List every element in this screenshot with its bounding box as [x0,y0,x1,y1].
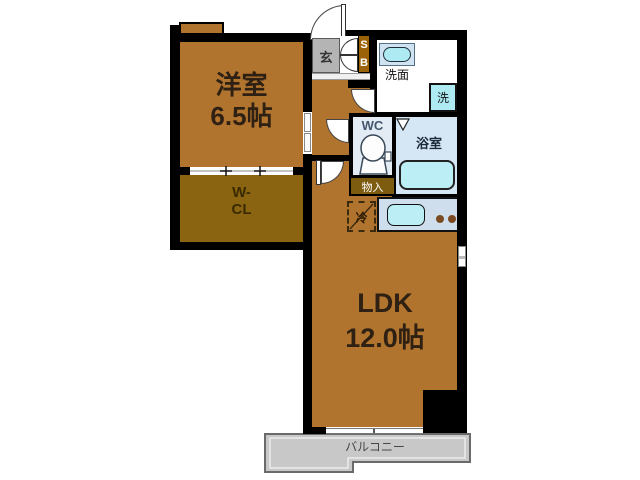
wall-ldk-left [303,242,312,433]
storage-label: 物入 [349,179,396,195]
bathtub-icon [399,160,455,190]
genkan-label: 玄 [312,47,340,66]
entrance-door-swing-icon [310,5,345,40]
wall-below-shoebox [348,80,377,88]
shoebox: S B [358,35,370,73]
western-room-sliding-door-icon [304,133,311,152]
bath-folding-door-icon [396,118,410,131]
room-ldk-label: LDK 12.0帖 [312,286,458,356]
kitchen-sink-icon [387,204,425,226]
pipe-space-column [179,22,224,35]
room-wcl-label: W- CL [180,184,303,218]
bathroom-label: 浴室 [404,133,454,152]
western-room-sliding-door-icon [304,113,311,132]
wall-bottom-left [170,242,312,250]
wall-right [457,30,467,433]
genkan-step [312,73,370,80]
wall-bottom-ldk [303,427,326,434]
toilet-icon [354,131,394,175]
wall-left [170,25,180,250]
sink-icon [383,47,411,62]
washer-label: 洗 [429,89,457,106]
balcony-label: バルコニー [300,438,450,455]
ldk-side-window [458,246,466,267]
shoebox-letter-s: S [360,39,367,51]
sliding-door-icon [190,166,293,176]
ldk-balcony-window [326,428,423,434]
shoebox-letter-b: B [360,57,368,69]
floor-plan: バルコニー 玄 S B 洗面 洗 WC 浴室 [0,0,640,480]
stove-burner-icon [448,215,456,223]
fridge-label: 冷 [347,209,376,226]
washroom-label: 洗面 [377,66,417,83]
room-western-label: 洋室 6.5帖 [180,70,303,132]
wall-notch-bottom-right [423,390,467,433]
stove-burner-icon [436,215,444,223]
